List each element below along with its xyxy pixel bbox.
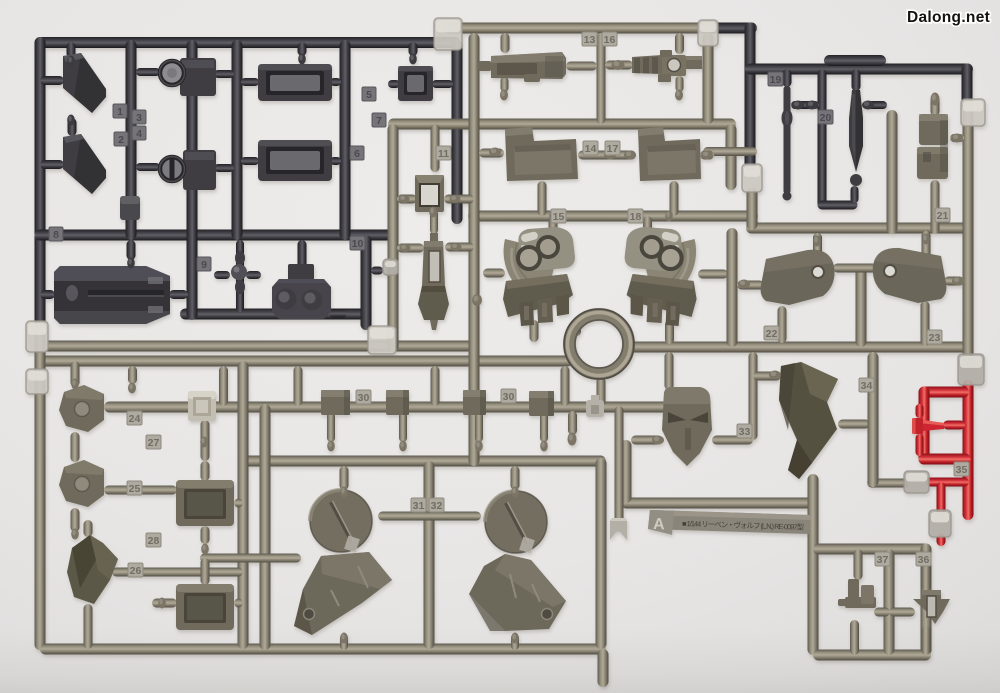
svg-text:19: 19 — [770, 74, 782, 86]
svg-text:21: 21 — [937, 210, 949, 222]
svg-text:20: 20 — [820, 112, 832, 124]
svg-text:16: 16 — [604, 34, 616, 46]
svg-text:15: 15 — [553, 211, 565, 223]
svg-text:37: 37 — [877, 554, 889, 566]
svg-text:5: 5 — [366, 89, 372, 101]
svg-text:31: 31 — [413, 500, 425, 512]
svg-text:33: 33 — [739, 426, 751, 438]
svg-text:24: 24 — [129, 413, 141, 425]
svg-text:9: 9 — [201, 259, 207, 271]
svg-text:25: 25 — [129, 483, 141, 495]
svg-text:18: 18 — [630, 211, 642, 223]
svg-text:27: 27 — [148, 437, 160, 449]
svg-text:4: 4 — [136, 128, 142, 140]
svg-text:32: 32 — [431, 500, 443, 512]
svg-text:7: 7 — [376, 115, 382, 127]
svg-text:34: 34 — [861, 380, 873, 392]
svg-text:28: 28 — [148, 535, 160, 547]
svg-text:A: A — [653, 516, 666, 533]
svg-text:23: 23 — [929, 332, 941, 344]
svg-text:22: 22 — [766, 328, 778, 340]
svg-text:11: 11 — [438, 148, 449, 160]
svg-text:26: 26 — [130, 565, 142, 577]
svg-text:2: 2 — [118, 134, 124, 146]
svg-text:30: 30 — [358, 392, 370, 404]
svg-text:6: 6 — [354, 148, 360, 160]
svg-text:10: 10 — [352, 238, 364, 250]
svg-text:35: 35 — [956, 464, 968, 476]
svg-text:36: 36 — [918, 554, 930, 566]
svg-text:3: 3 — [136, 112, 142, 124]
svg-text:8: 8 — [53, 229, 59, 241]
svg-text:30: 30 — [503, 391, 515, 403]
svg-text:Dalong.net: Dalong.net — [907, 9, 990, 26]
svg-text:1: 1 — [117, 106, 123, 118]
svg-text:14: 14 — [585, 143, 597, 155]
svg-text:13: 13 — [584, 34, 596, 46]
svg-text:17: 17 — [607, 143, 619, 155]
